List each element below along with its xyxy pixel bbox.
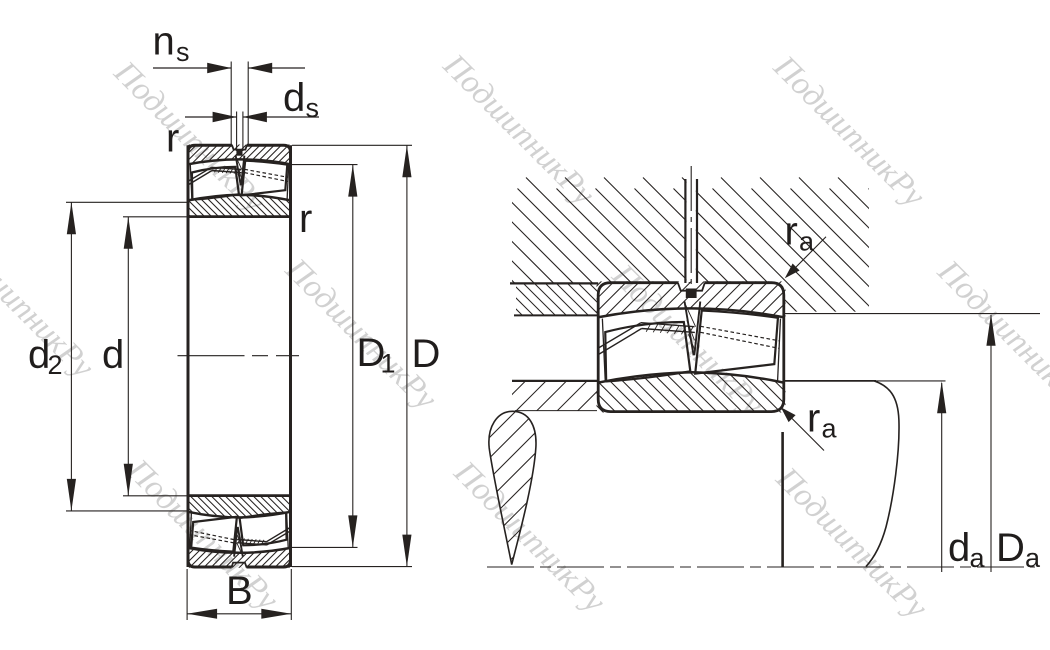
svg-text:ПодшипникРу: ПодшипникРу — [766, 48, 932, 214]
svg-text:a: a — [822, 414, 838, 444]
svg-text:d: d — [283, 76, 305, 120]
svg-text:d: d — [102, 333, 124, 377]
svg-text:1: 1 — [381, 349, 396, 379]
svg-text:a: a — [1025, 543, 1041, 573]
svg-text:ПодшипникРу: ПодшипникРу — [435, 47, 601, 213]
svg-text:D: D — [412, 332, 441, 376]
svg-text:n: n — [153, 20, 175, 64]
svg-text:ПодшипникРу: ПодшипникРу — [768, 460, 934, 626]
svg-text:r: r — [785, 210, 798, 254]
svg-text:s: s — [306, 93, 320, 123]
svg-text:ПодшипникРу: ПодшипникРу — [446, 454, 612, 620]
svg-text:B: B — [226, 569, 253, 613]
svg-text:2: 2 — [48, 350, 63, 380]
svg-text:ПодшипникРу: ПодшипникРу — [119, 452, 285, 618]
svg-text:r: r — [299, 197, 312, 241]
svg-text:r: r — [807, 397, 820, 441]
svg-text:s: s — [176, 37, 190, 67]
svg-text:a: a — [970, 543, 986, 573]
svg-text:a: a — [799, 227, 815, 257]
svg-text:d: d — [948, 526, 970, 570]
svg-text:r: r — [166, 117, 179, 161]
svg-text:D: D — [996, 526, 1025, 570]
